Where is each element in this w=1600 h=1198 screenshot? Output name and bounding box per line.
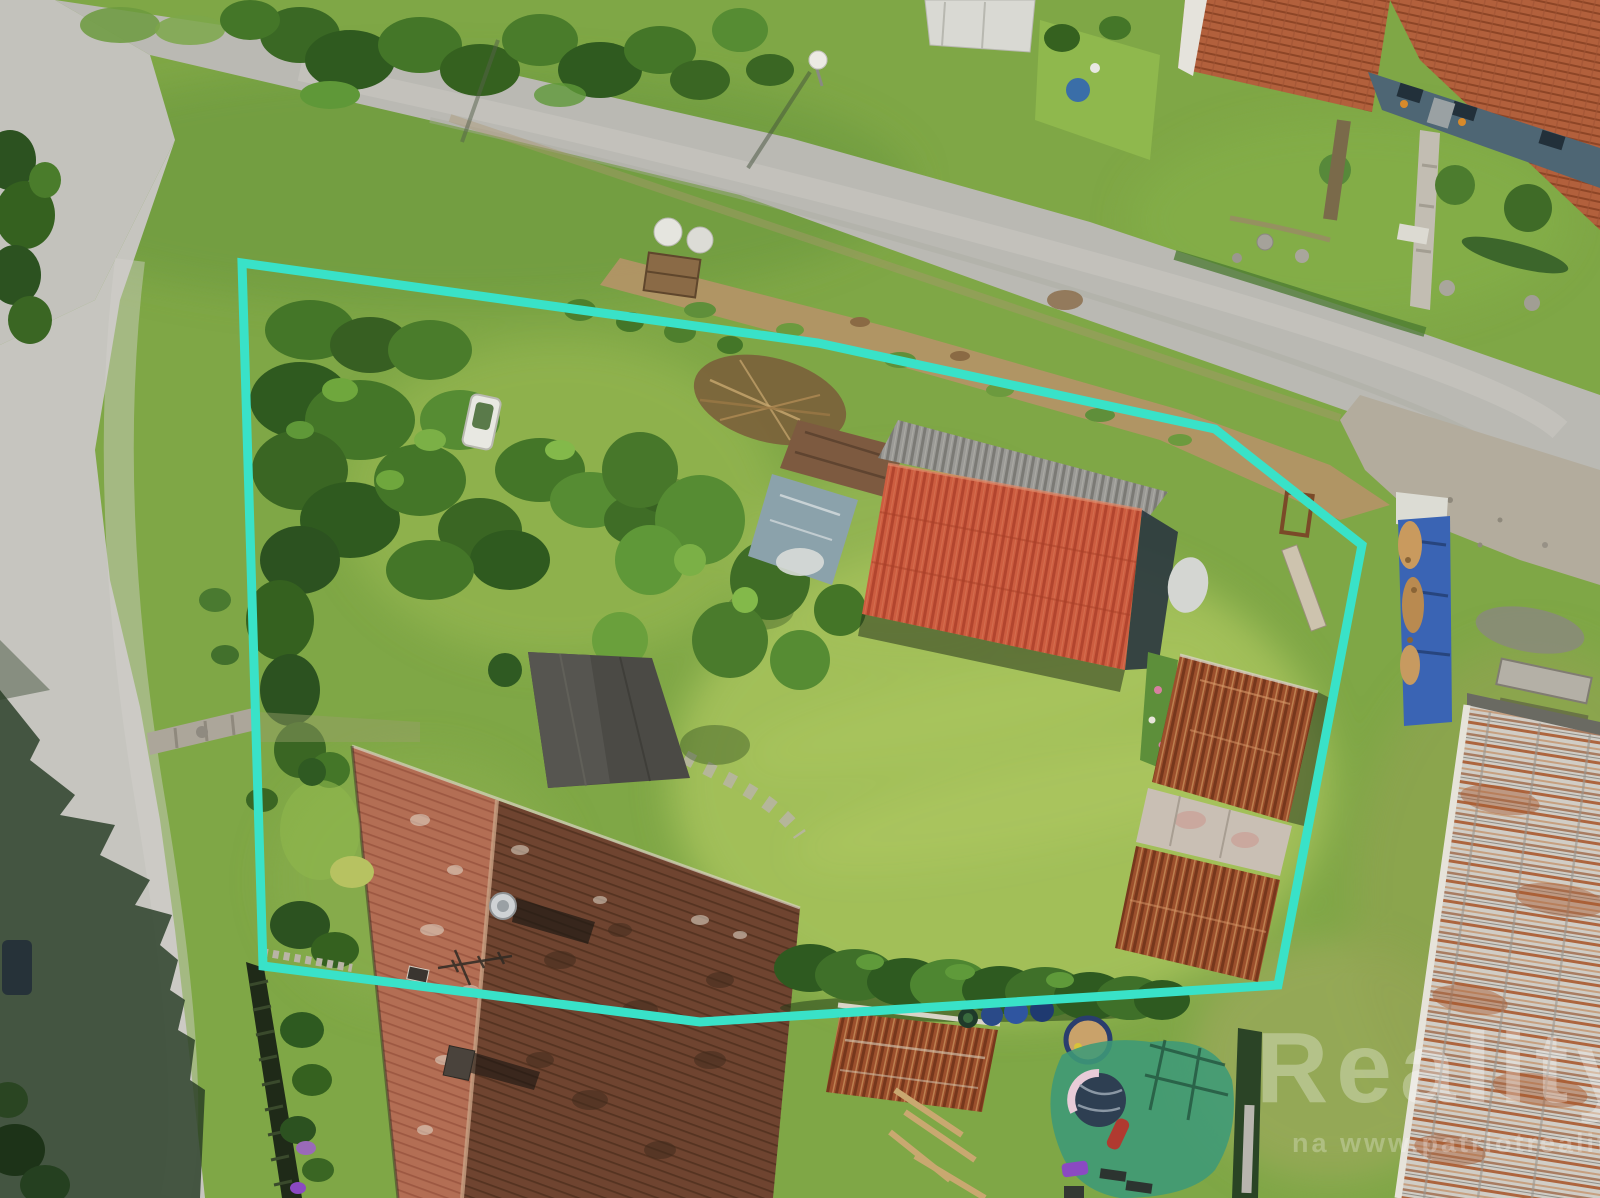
watermark-brand: Reality — [1256, 1012, 1600, 1124]
parked-object — [2, 940, 32, 995]
screenshot: Reality na www.patriotreality.cz — [0, 0, 1600, 1198]
white-house — [925, 0, 1035, 52]
aerial-photo: Reality na www.patriotreality.cz — [0, 0, 1600, 1198]
stone — [1257, 234, 1273, 250]
manhole — [196, 726, 208, 738]
conifer — [488, 653, 522, 687]
wooden-crate — [644, 253, 701, 298]
purple-flowers — [296, 1141, 316, 1155]
watermark-tagline: na www.patriotreality.cz — [1292, 1128, 1600, 1158]
dish — [654, 218, 682, 246]
yellow-bush — [330, 856, 374, 888]
woodpile-tarp — [1396, 492, 1452, 726]
garden-pool — [1066, 78, 1090, 102]
